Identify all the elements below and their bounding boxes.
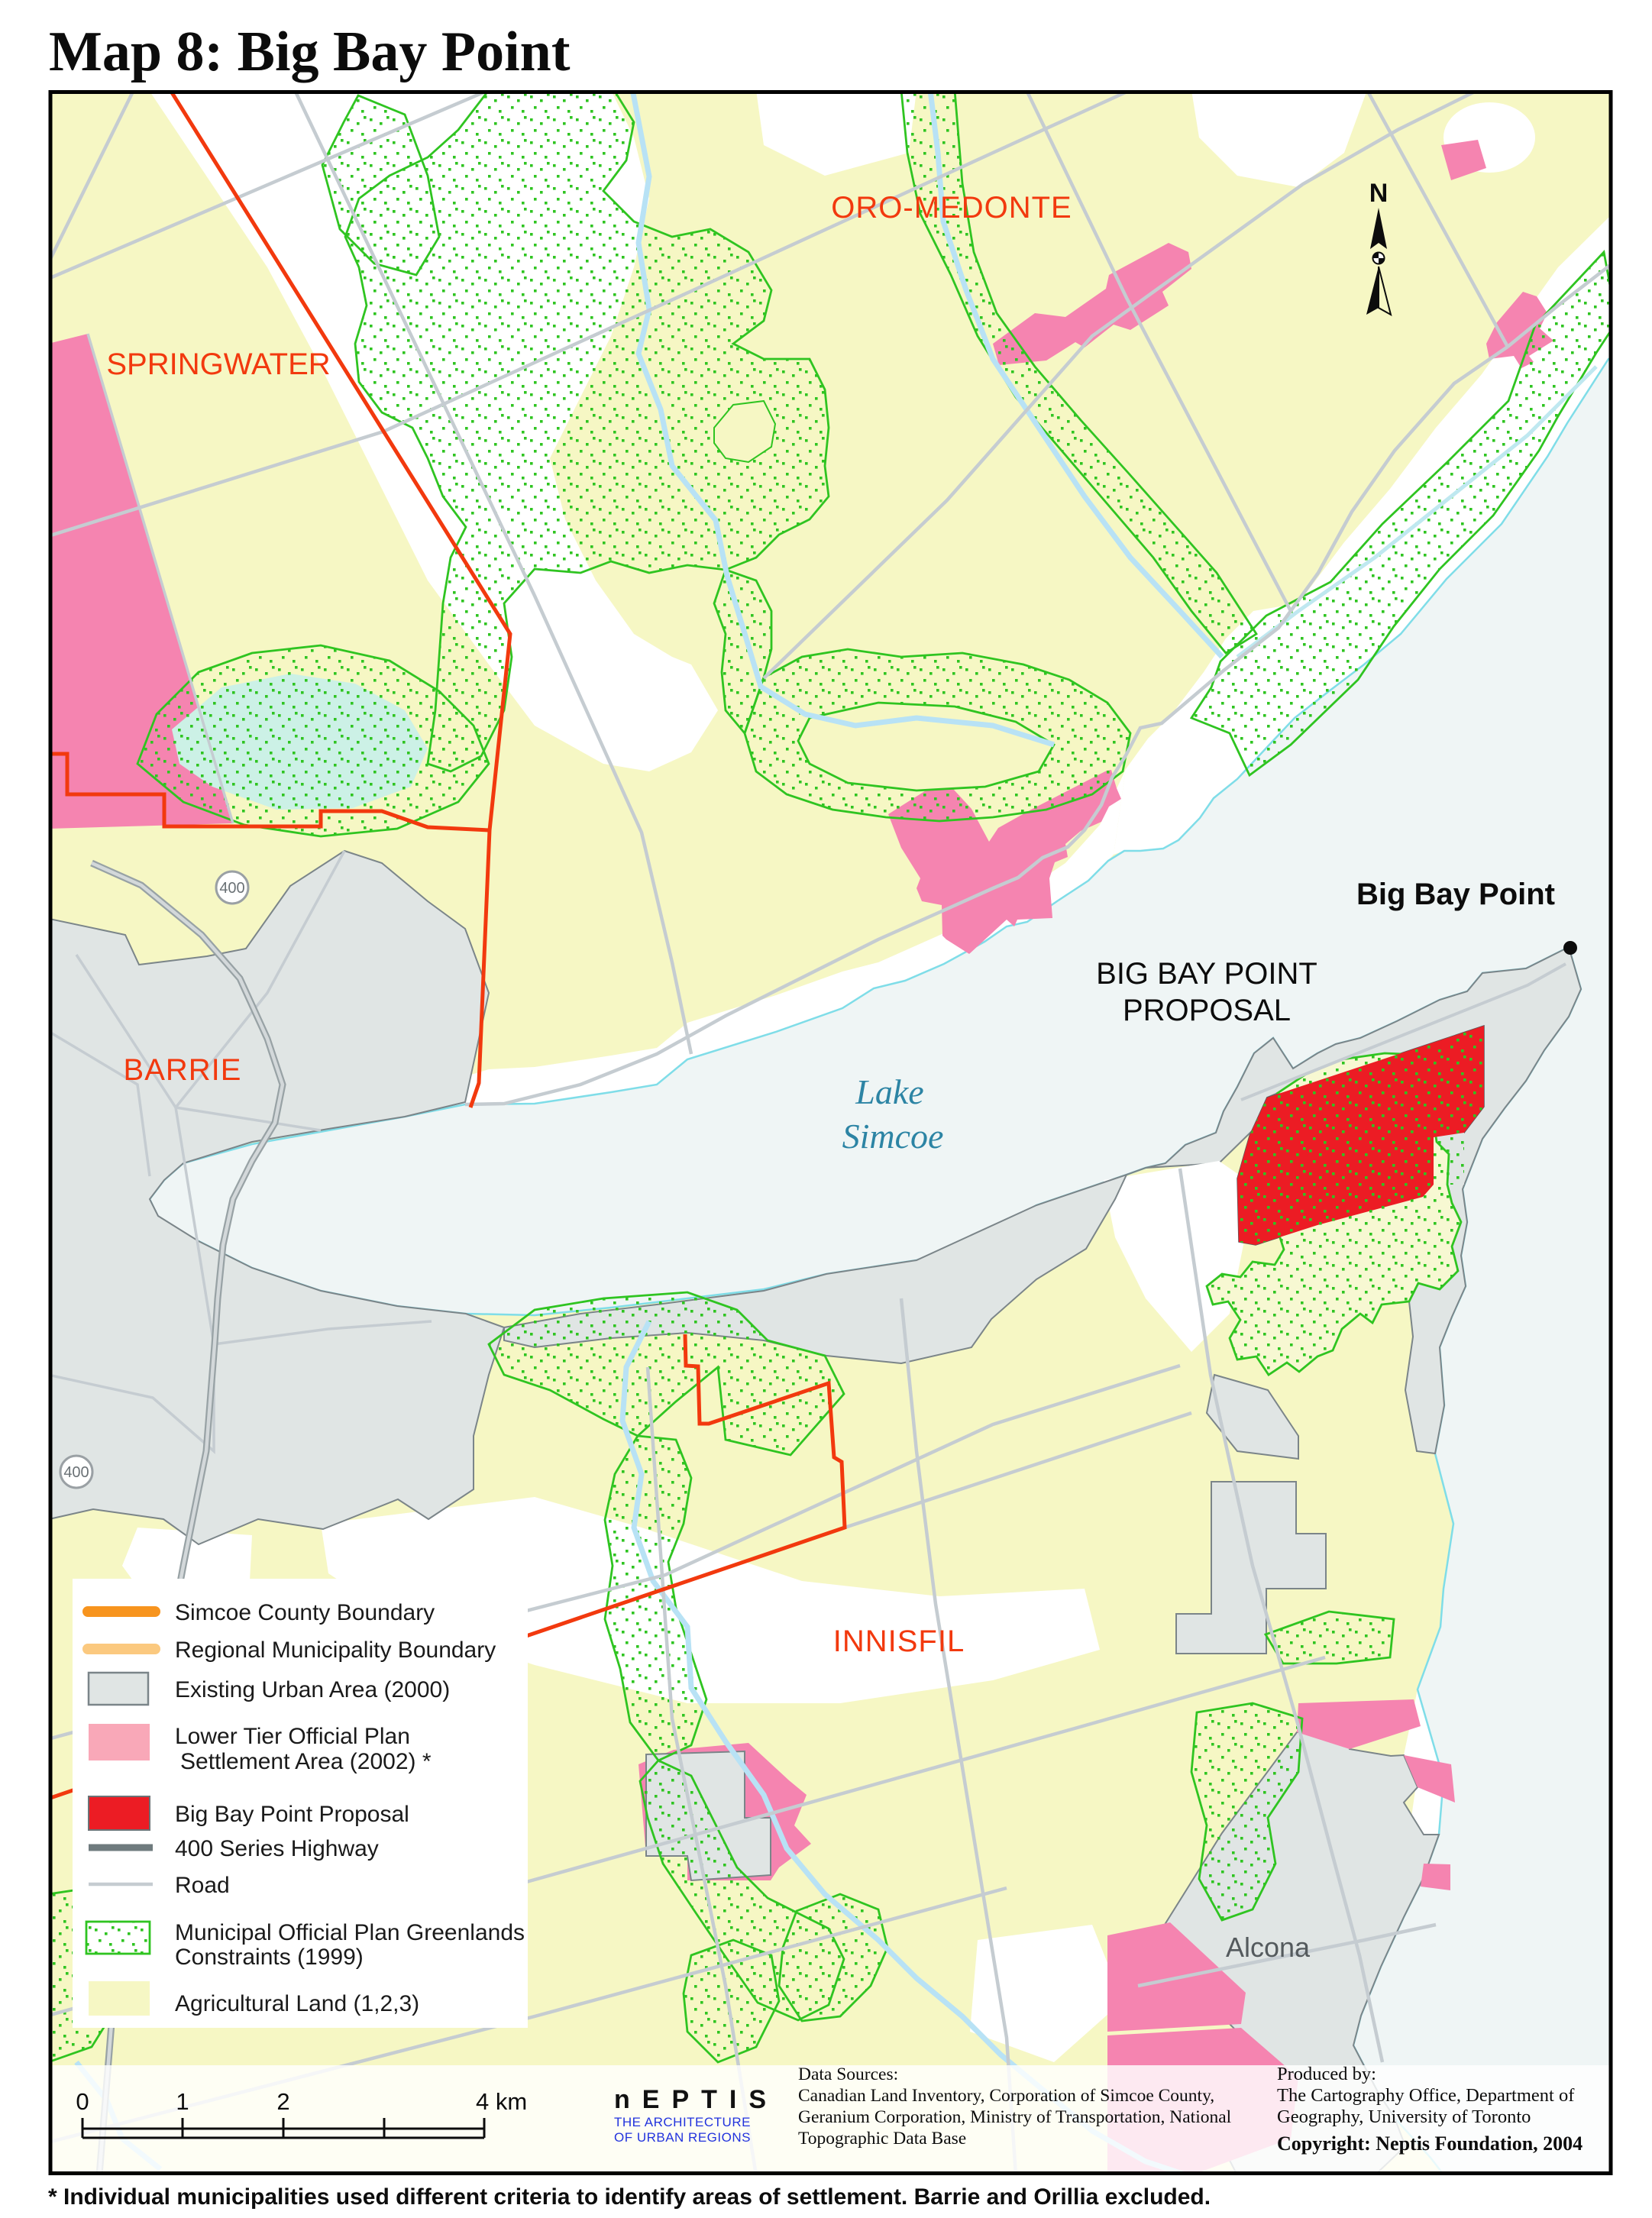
svg-text:Constraints (1999): Constraints (1999): [175, 1945, 364, 1970]
svg-text:PROPOSAL: PROPOSAL: [1123, 994, 1291, 1027]
svg-text:Existing Urban Area (2000): Existing Urban Area (2000): [175, 1677, 450, 1702]
svg-text:Produced by:: Produced by:: [1277, 2064, 1376, 2084]
svg-text:Simcoe: Simcoe: [842, 1117, 944, 1156]
svg-text:INNISFIL: INNISFIL: [833, 1625, 965, 1658]
svg-text:* Individual municipalities us: * Individual municipalities used differe…: [48, 2184, 1211, 2210]
svg-text:ORO-MEDONTE: ORO-MEDONTE: [831, 191, 1072, 225]
svg-text:Road: Road: [175, 1873, 230, 1898]
svg-text:Regional Municipality Boundary: Regional Municipality Boundary: [175, 1638, 496, 1663]
svg-text:Lower Tier Official Plan: Lower Tier Official Plan: [175, 1724, 410, 1749]
svg-text:THE ARCHITECTURE: THE ARCHITECTURE: [614, 2115, 751, 2129]
svg-text:Big Bay Point: Big Bay Point: [1356, 878, 1555, 911]
svg-text:Lake: Lake: [855, 1072, 923, 1111]
svg-text:Topographic Data Base: Topographic Data Base: [798, 2129, 966, 2148]
svg-text:Geography, University of Toron: Geography, University of Toronto: [1277, 2106, 1531, 2127]
svg-text:Copyright: Neptis Foundation,: Copyright: Neptis Foundation, 2004: [1277, 2132, 1582, 2155]
svg-text:Geranium Corporation, Ministry: Geranium Corporation, Ministry of Transp…: [798, 2107, 1232, 2127]
svg-text:Simcoe County Boundary: Simcoe County Boundary: [175, 1600, 435, 1625]
svg-text:1: 1: [176, 2088, 189, 2115]
svg-text:0: 0: [76, 2088, 89, 2115]
svg-text:4 km: 4 km: [476, 2088, 527, 2115]
svg-text:400: 400: [219, 880, 244, 897]
svg-text:2: 2: [276, 2088, 289, 2115]
svg-text:SPRINGWATER: SPRINGWATER: [106, 348, 330, 381]
svg-text:OF URBAN REGIONS: OF URBAN REGIONS: [614, 2130, 751, 2145]
svg-text:The Cartography Office, Depart: The Cartography Office, Department of: [1277, 2085, 1575, 2106]
svg-text:Map 8: Big Bay Point: Map 8: Big Bay Point: [49, 21, 571, 83]
svg-text:nEPTIS: nEPTIS: [614, 2085, 778, 2114]
svg-text:400: 400: [63, 1464, 89, 1481]
svg-text:Alcona: Alcona: [1226, 1932, 1311, 1963]
svg-text:Settlement Area (2002) *: Settlement Area (2002) *: [180, 1749, 432, 1774]
svg-text:BIG BAY POINT: BIG BAY POINT: [1096, 957, 1317, 991]
svg-text:Data Sources:: Data Sources:: [798, 2064, 898, 2084]
svg-text:Big Bay Point Proposal: Big Bay Point Proposal: [175, 1802, 409, 1827]
svg-text:Municipal Official Plan Greenl: Municipal Official Plan Greenlands: [175, 1920, 525, 1945]
svg-text:BARRIE: BARRIE: [124, 1053, 242, 1087]
svg-text:N: N: [1369, 179, 1389, 208]
svg-text:Agricultural Land (1,2,3): Agricultural Land (1,2,3): [175, 1991, 419, 2016]
svg-text:Canadian Land Inventory, Corpo: Canadian Land Inventory, Corporation of …: [798, 2086, 1214, 2106]
svg-text:400 Series Highway: 400 Series Highway: [175, 1836, 379, 1861]
